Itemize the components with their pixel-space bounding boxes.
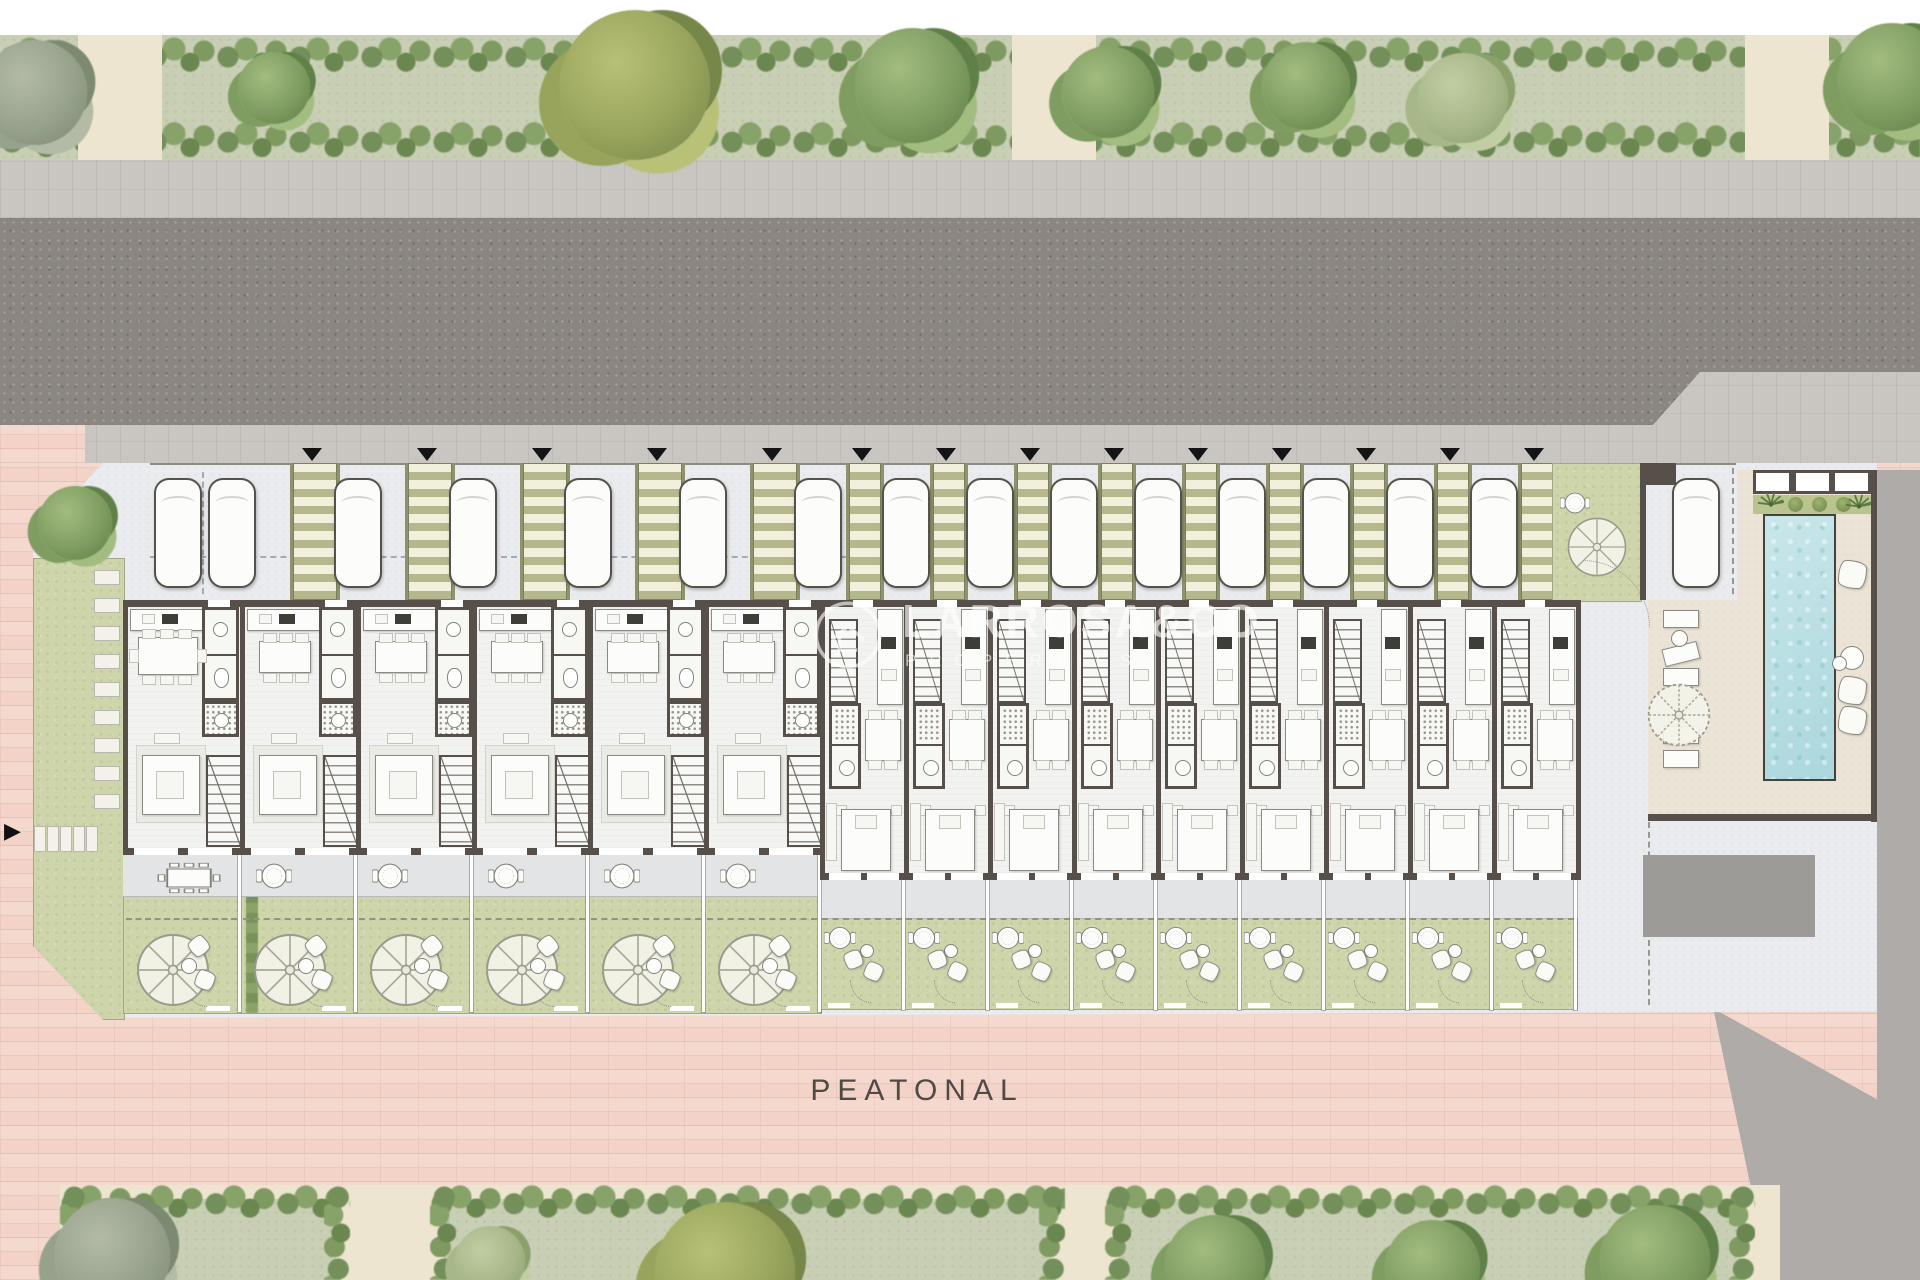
chair-icon [611, 633, 625, 643]
toilet-icon [214, 668, 229, 688]
stepping-stone [94, 738, 120, 753]
shower [834, 708, 856, 740]
chair-icon [1304, 760, 1318, 770]
shower [1422, 708, 1444, 740]
rear-window [1119, 873, 1151, 880]
stepping-stone [47, 826, 59, 852]
rear-window [715, 848, 759, 855]
garden-divider [1070, 880, 1073, 1010]
toilet-icon [447, 668, 462, 688]
watermark-brand: LARROSA&CO [902, 598, 1262, 644]
townhouse-unit-type-a [704, 600, 825, 855]
car-icon [794, 478, 842, 588]
outdoor-table-icon [488, 858, 524, 894]
staircase [1501, 619, 1530, 703]
car-icon [449, 478, 497, 588]
sink-icon [1469, 669, 1485, 681]
private-terrace [1156, 880, 1240, 919]
sink-icon [1385, 669, 1401, 681]
chair-icon [1472, 710, 1486, 720]
chair-icon [1120, 710, 1134, 720]
garden-line [1410, 918, 1490, 920]
garden-line [1326, 918, 1406, 920]
dining-table [1369, 719, 1405, 761]
chair-icon [527, 633, 541, 643]
entry-marker-icon [417, 448, 437, 461]
toilet-icon [331, 668, 346, 688]
chair-icon [1372, 710, 1386, 720]
nightstand-icon [1395, 805, 1406, 816]
toilet-icon [839, 760, 855, 776]
stove-icon [162, 614, 178, 624]
chair-icon [1540, 710, 1554, 720]
entry-walk [1266, 463, 1304, 600]
bath-divider [322, 654, 353, 656]
chair-icon [1120, 760, 1134, 770]
bath-divider [1168, 744, 1194, 746]
toilet-icon [1175, 760, 1191, 776]
sink-icon [1553, 669, 1569, 681]
outdoor-table-icon [256, 858, 292, 894]
pillow-icon [1107, 815, 1129, 829]
pool-pillow-icon [1838, 560, 1867, 589]
outdoor-table-icon [372, 858, 408, 894]
dining-table [375, 641, 427, 673]
rear-window [769, 848, 813, 855]
entry-marker-icon [1272, 448, 1292, 461]
chair-icon [643, 673, 657, 683]
rear-window [537, 848, 581, 855]
pool-pillow-icon [1838, 706, 1867, 735]
nightstand-icon [1563, 805, 1574, 816]
garden-line [990, 918, 1070, 920]
tree-icon [1418, 53, 1508, 143]
nightstand-icon [1311, 805, 1322, 816]
chair-icon [868, 710, 882, 720]
bath-divider [438, 654, 469, 656]
garden-gate [828, 1003, 850, 1008]
bathroom [1501, 703, 1533, 789]
sink-icon [259, 614, 272, 624]
watermark-logo-icon [812, 599, 884, 671]
rear-window [1501, 873, 1533, 880]
bath-divider [832, 744, 858, 746]
front-door [441, 600, 463, 607]
bathroom [913, 703, 945, 789]
rear-window [913, 873, 945, 880]
garden-line [359, 918, 469, 920]
chair-icon [868, 760, 882, 770]
stepping-stone [94, 654, 120, 669]
coffee-table-icon [505, 771, 533, 799]
nightstand-icon [975, 805, 986, 816]
chair-icon [1388, 710, 1402, 720]
rear-window [1203, 873, 1235, 880]
chair-icon [627, 673, 641, 683]
staircase [787, 755, 823, 847]
sink-icon [607, 614, 620, 624]
pillow-icon [1443, 815, 1465, 829]
garden-gate [1500, 1003, 1522, 1008]
stove-icon [279, 614, 295, 624]
chair-icon [1456, 710, 1470, 720]
chair-icon [759, 633, 773, 643]
garden-divider [1574, 880, 1577, 1010]
stepping-stone [34, 826, 46, 852]
dining-table [138, 637, 198, 675]
drain-icon [795, 713, 810, 728]
garden-line [707, 918, 817, 920]
entry-marker-icon [1188, 448, 1208, 461]
pillow-icon [1527, 815, 1549, 829]
sink-icon [1301, 669, 1317, 681]
car-icon [1302, 478, 1350, 588]
garden-line [243, 918, 353, 920]
chair-icon [1556, 760, 1570, 770]
chair-icon [1456, 760, 1470, 770]
stepping-stone [73, 826, 85, 852]
shower [783, 701, 820, 737]
stepping-stone [60, 826, 72, 852]
shower [1170, 708, 1192, 740]
rear-window [997, 873, 1029, 880]
rear-window [1035, 873, 1067, 880]
bathroom [667, 607, 704, 701]
chair-icon [129, 649, 139, 663]
entry-marker-icon [1104, 448, 1124, 461]
toilet-icon [679, 668, 694, 688]
garden-divider [470, 855, 473, 1012]
rear-window [829, 873, 861, 880]
garden-divider [1406, 880, 1409, 1010]
chair-icon [884, 760, 898, 770]
garden-line [1074, 918, 1154, 920]
boundary-wall [1648, 814, 1877, 821]
front-door [673, 600, 695, 607]
pillow-icon [939, 815, 961, 829]
palm-icon [1844, 490, 1874, 520]
dining-table [949, 719, 985, 761]
tree-icon [38, 486, 112, 560]
staircase [323, 755, 359, 847]
kitchen-counter [1381, 609, 1407, 705]
south-hedge-row-icon [1105, 1185, 1131, 1280]
car-icon [154, 478, 202, 588]
garden-divider [986, 880, 989, 1010]
chair-icon [1036, 710, 1050, 720]
stepping-stone [94, 766, 120, 781]
chair-icon [1052, 710, 1066, 720]
staircase [439, 755, 475, 847]
toilet-icon [563, 668, 578, 688]
townhouse-unit-type-a [588, 600, 709, 855]
chair-icon [968, 760, 982, 770]
garden-line [1494, 918, 1574, 920]
entry-walk [930, 463, 968, 600]
entry-marker-icon [1020, 448, 1040, 461]
car-icon [966, 478, 1014, 588]
plant-icon [1788, 497, 1803, 512]
chair-icon [952, 760, 966, 770]
chair-icon [1540, 760, 1554, 770]
car-icon [1050, 478, 1098, 588]
entry-marker-icon [1440, 448, 1460, 461]
outdoor-table-icon [1560, 488, 1590, 518]
entry-marker-icon [1356, 448, 1376, 461]
dining-table [1033, 719, 1069, 761]
rear-window [599, 848, 643, 855]
south-hedge-row-icon [1039, 1185, 1065, 1280]
tv-console-icon [619, 733, 645, 744]
bathroom [1081, 703, 1113, 789]
entry-marker-icon [852, 448, 872, 461]
bath-divider [205, 654, 236, 656]
townhouse-unit-type-a [472, 600, 593, 855]
bathroom [1165, 703, 1197, 789]
chair-icon [627, 633, 641, 643]
rear-window [1249, 873, 1281, 880]
townhouse-unit-type-b [1324, 600, 1413, 880]
bath-divider [1504, 744, 1530, 746]
bath-divider [554, 654, 585, 656]
toilet-icon [1427, 760, 1443, 776]
bathroom [202, 607, 239, 701]
coffee-table-icon [156, 771, 184, 799]
chair-icon [178, 675, 192, 685]
nightstand-icon [1479, 805, 1490, 816]
chair-icon [379, 633, 393, 643]
chair-icon [142, 629, 156, 639]
staircase [555, 755, 591, 847]
garage-edge [1732, 468, 1734, 594]
stepping-stone [94, 682, 120, 697]
asphalt-road [0, 218, 1920, 425]
bath-divider [1336, 744, 1362, 746]
washbasin-icon [794, 622, 809, 637]
kitchen-counter [1297, 609, 1323, 705]
garden-divider [354, 855, 357, 1012]
entry-marker-icon [302, 448, 322, 461]
chair-icon [511, 673, 525, 683]
chair-icon [1052, 760, 1066, 770]
chair-icon [263, 673, 277, 683]
front-door [208, 600, 230, 607]
chair-icon [727, 633, 741, 643]
garden-gate [996, 1003, 1018, 1008]
drain-icon [679, 713, 694, 728]
tree-icon [560, 10, 710, 160]
front-door [325, 600, 347, 607]
chair-icon [527, 673, 541, 683]
garden-divider [586, 855, 589, 1012]
sink-icon [375, 614, 388, 624]
outdoor-table-icon [604, 858, 640, 894]
stepping-stone [94, 626, 120, 641]
rear-window [305, 848, 349, 855]
rear-window [1455, 873, 1487, 880]
pillow-icon [1023, 815, 1045, 829]
tree-icon [1262, 42, 1350, 130]
pergola-panel [1835, 473, 1868, 491]
dining-table [1453, 719, 1489, 761]
bath-divider [1420, 744, 1446, 746]
bath-divider [916, 744, 942, 746]
chair-icon [495, 673, 509, 683]
washbasin-icon [330, 622, 345, 637]
stove-icon [1301, 637, 1316, 649]
dining-table [1201, 719, 1237, 761]
shower [551, 701, 588, 737]
chair-icon [1304, 710, 1318, 720]
chair-icon [1472, 760, 1486, 770]
stove-icon [511, 614, 527, 624]
palm-icon [1756, 488, 1786, 518]
bathroom [1417, 703, 1449, 789]
townhouse-unit-type-b [1492, 600, 1581, 880]
stove-icon [743, 614, 759, 624]
toilet-icon [1343, 760, 1359, 776]
garden-gate [1332, 1003, 1354, 1008]
parasol-icon [1646, 682, 1712, 748]
shower [202, 701, 239, 737]
private-terrace [1492, 880, 1576, 919]
south-hedge-row-icon [430, 1185, 456, 1280]
tv-console-icon [154, 733, 180, 744]
entry-marker-icon [936, 448, 956, 461]
shower [667, 701, 704, 737]
entry-walk [750, 463, 800, 600]
utility-slab [1643, 855, 1815, 937]
tv-console-icon [735, 733, 761, 744]
pool-pillow-icon [1838, 676, 1867, 705]
private-terrace [1324, 880, 1408, 919]
car-icon [334, 478, 382, 588]
stepping-stone [94, 570, 120, 585]
chair-icon [1136, 710, 1150, 720]
chair-icon [1204, 710, 1218, 720]
sun-lounger-icon [1663, 610, 1699, 628]
toilet-icon [923, 760, 939, 776]
entry-walk [405, 463, 455, 600]
boundary-wall [1871, 470, 1877, 822]
private-terrace [1072, 880, 1156, 919]
chair-icon [495, 633, 509, 643]
garden-gate [1080, 1003, 1102, 1008]
chair-icon [411, 633, 425, 643]
staircase [671, 755, 707, 847]
pillow-icon [855, 815, 877, 829]
watermark: LARROSA&CO PROPERTIES [812, 598, 1262, 671]
chair-icon [160, 675, 174, 685]
car-icon [882, 478, 930, 588]
sink-icon [491, 614, 504, 624]
rear-window [1081, 873, 1113, 880]
chair-icon [1136, 760, 1150, 770]
rear-window [251, 848, 295, 855]
stove-icon [395, 614, 411, 624]
shrub-icon [238, 52, 310, 124]
shower [1506, 708, 1528, 740]
bathroom [1249, 703, 1281, 789]
entry-walk [290, 463, 340, 600]
dining-table [1537, 719, 1573, 761]
drain-icon [447, 713, 462, 728]
car-icon [1218, 478, 1266, 588]
private-terrace [820, 880, 904, 919]
chair-icon [160, 629, 174, 639]
toilet-icon [795, 668, 810, 688]
entry-marker-icon [762, 448, 782, 461]
south-hedge-row-icon [324, 1185, 350, 1280]
staircase [1417, 619, 1446, 703]
tv-console-icon [387, 733, 413, 744]
side-table-icon [181, 958, 197, 974]
chair-icon [727, 673, 741, 683]
drain-icon [331, 713, 346, 728]
coffee-table-icon [737, 771, 765, 799]
parking-bay-divider [202, 472, 204, 594]
entry-walk [1014, 463, 1052, 600]
bathroom [551, 607, 588, 701]
car-icon [1134, 478, 1182, 588]
stove-icon [1469, 637, 1484, 649]
chair-icon [1036, 760, 1050, 770]
chair-icon [1556, 710, 1570, 720]
sink-icon [723, 614, 736, 624]
washbasin-icon [562, 622, 577, 637]
rear-window [1287, 873, 1319, 880]
drain-icon [214, 713, 229, 728]
bath-divider [1252, 744, 1278, 746]
staircase [1333, 619, 1362, 703]
chair-icon [1388, 760, 1402, 770]
verge-path [78, 35, 162, 160]
chair-icon [968, 710, 982, 720]
shower [1086, 708, 1108, 740]
entry-walk [1182, 463, 1220, 600]
private-terrace [904, 880, 988, 919]
tv-console-icon [271, 733, 297, 744]
front-door [1273, 600, 1293, 607]
chair-icon [395, 673, 409, 683]
chair-icon [952, 710, 966, 720]
pedestrian-street-label: PEATONAL [767, 1074, 1067, 1108]
nightstand-icon [1143, 805, 1154, 816]
staircase [206, 755, 242, 847]
washbasin-icon [446, 622, 461, 637]
private-terrace [1240, 880, 1324, 919]
entry-walk [635, 463, 685, 600]
dining-table [1117, 719, 1153, 761]
garden-divider [902, 880, 905, 1010]
rear-window [483, 848, 527, 855]
car-icon [1470, 478, 1518, 588]
front-door [1357, 600, 1377, 607]
site-plan: ▶ LARROSA&CO PROPERTIES PE [0, 0, 1920, 1280]
garden-line [906, 918, 986, 920]
dining-table [723, 641, 775, 673]
shower [435, 701, 472, 737]
chair-icon [743, 633, 757, 643]
side-table-icon [762, 958, 778, 974]
garden-divider [1238, 880, 1241, 1010]
garage-wall [1640, 463, 1676, 485]
entry-walk [1350, 463, 1388, 600]
garden-divider [1490, 880, 1493, 1010]
private-terrace [1408, 880, 1492, 919]
shower [918, 708, 940, 740]
chair-icon [611, 673, 625, 683]
